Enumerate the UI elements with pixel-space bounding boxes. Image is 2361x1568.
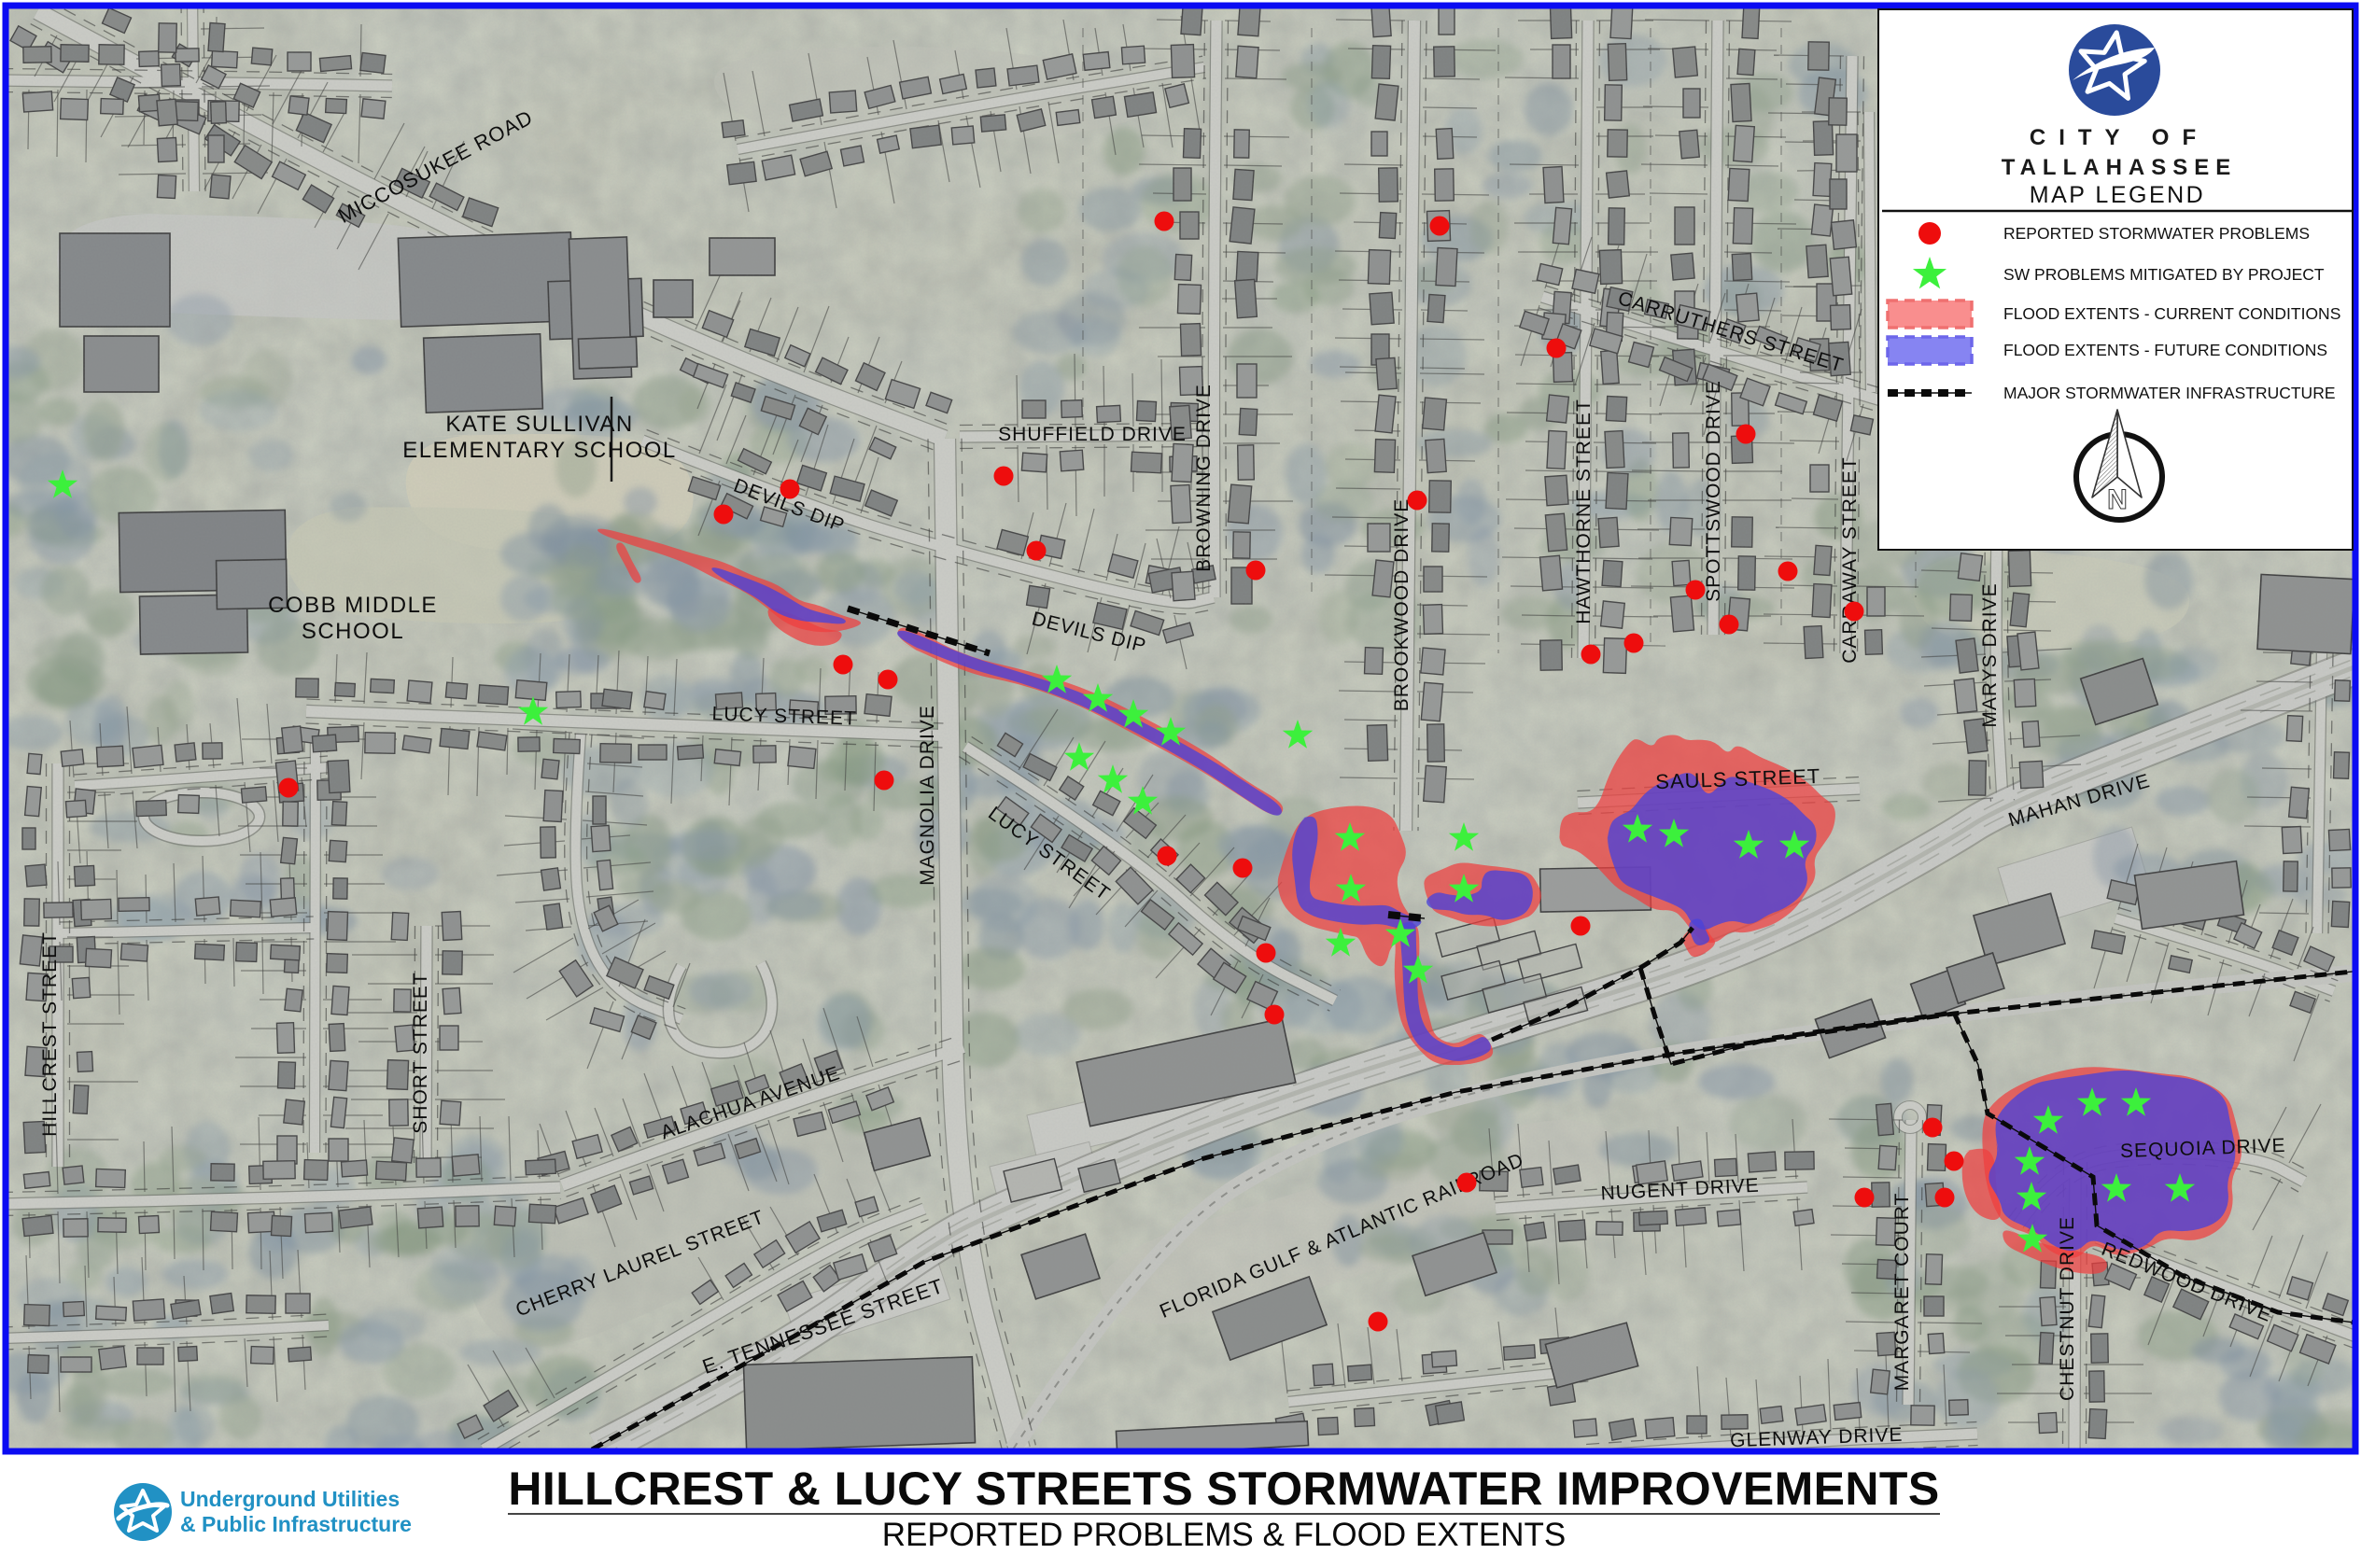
svg-text:ELEMENTARY SCHOOL: ELEMENTARY SCHOOL xyxy=(402,438,677,463)
svg-text:N: N xyxy=(2107,484,2128,515)
svg-text:SW PROBLEMS MITIGATED BY PROJE: SW PROBLEMS MITIGATED BY PROJECT xyxy=(2003,265,2325,284)
svg-text:BROOKWOOD DRIVE: BROOKWOOD DRIVE xyxy=(1391,498,1412,712)
svg-text:SHUFFIELD DRIVE: SHUFFIELD DRIVE xyxy=(998,424,1187,445)
svg-text:MARGARET COURT: MARGARET COURT xyxy=(1891,1193,1913,1392)
svg-text:HILLCREST STREET: HILLCREST STREET xyxy=(39,931,61,1137)
svg-text:FLOOD EXTENTS - FUTURE CONDITI: FLOOD EXTENTS - FUTURE CONDITIONS xyxy=(2003,341,2327,359)
svg-text:MAGNOLIA DRIVE: MAGNOLIA DRIVE xyxy=(917,705,938,886)
svg-text:REPORTED PROBLEMS & FLOOD EXTE: REPORTED PROBLEMS & FLOOD EXTENTS xyxy=(882,1517,1567,1553)
svg-text:SPOTTSWOOD DRIVE: SPOTTSWOOD DRIVE xyxy=(1703,380,1724,602)
svg-text:HAWTHORNE STREET: HAWTHORNE STREET xyxy=(1573,399,1595,624)
svg-text:BROWNING DRIVE: BROWNING DRIVE xyxy=(1193,384,1215,572)
svg-text:COBB MIDDLE: COBB MIDDLE xyxy=(268,593,438,618)
svg-text:MARYS DRIVE: MARYS DRIVE xyxy=(1979,582,2001,727)
svg-text:REPORTED STORMWATER PROBLEMS: REPORTED STORMWATER PROBLEMS xyxy=(2003,224,2310,243)
svg-text:& Public Infrastructure: & Public Infrastructure xyxy=(180,1512,412,1536)
svg-text:KATE SULLIVAN: KATE SULLIVAN xyxy=(445,412,633,437)
svg-text:CARRAWAY STREET: CARRAWAY STREET xyxy=(1839,456,1861,664)
svg-text:SCHOOL: SCHOOL xyxy=(302,619,404,644)
svg-text:MAP LEGEND: MAP LEGEND xyxy=(2030,182,2205,208)
svg-text:TALLAHASSEE: TALLAHASSEE xyxy=(2002,155,2238,180)
svg-text:CHESTNUT DRIVE: CHESTNUT DRIVE xyxy=(2057,1216,2078,1401)
svg-text:HILLCREST & LUCY STREETS STORM: HILLCREST & LUCY STREETS STORMWATER IMPR… xyxy=(508,1463,1939,1515)
svg-text:FLOOD EXTENTS - CURRENT CONDIT: FLOOD EXTENTS - CURRENT CONDITIONS xyxy=(2003,304,2340,323)
svg-text:Underground Utilities: Underground Utilities xyxy=(180,1487,400,1511)
svg-text:CITY OF: CITY OF xyxy=(2030,125,2209,150)
svg-text:MAJOR STORMWATER INFRASTRUCTUR: MAJOR STORMWATER INFRASTRUCTURE xyxy=(2003,384,2336,402)
svg-text:SHORT STREET: SHORT STREET xyxy=(410,972,431,1133)
